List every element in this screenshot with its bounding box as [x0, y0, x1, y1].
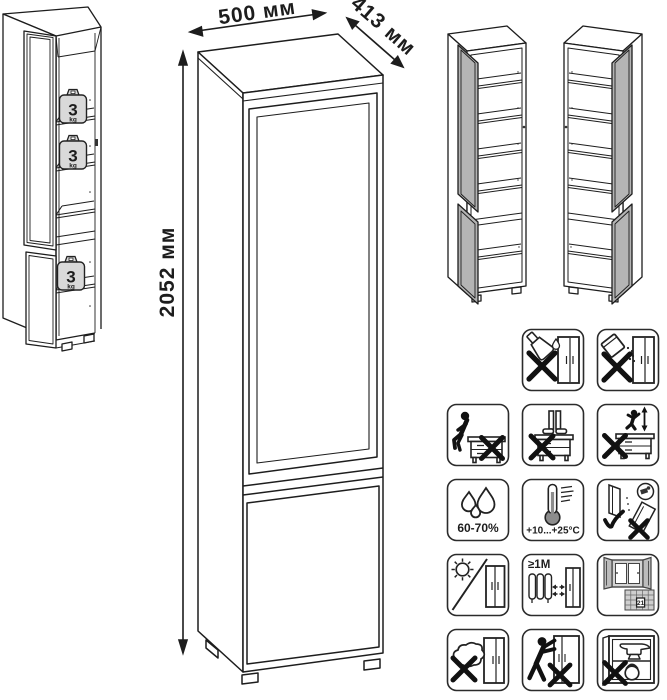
wardrobe-glyph: [566, 568, 580, 607]
main-cabinet-dimension-view: 500 мм 413 мм 2052 мм: [150, 0, 420, 700]
upper-door: [249, 93, 377, 474]
door-variant-left-view: [428, 12, 538, 312]
cabinet-foot: [242, 673, 258, 684]
no-liquids-icon: [521, 328, 585, 392]
kettlebell-glyph: [625, 665, 639, 680]
radiator-glyph: [529, 574, 552, 603]
shelf-load-weight: 3 kg: [58, 257, 85, 291]
open-cabinet-load-view: 3 kg 3 kg 3 kg: [0, 0, 115, 370]
weight-unit: kg: [69, 163, 77, 170]
furniture-spec-sheet: 3 kg 3 kg 3 kg: [0, 0, 667, 700]
no-wet-cleaning-icon: [446, 628, 510, 692]
cabinet-foot: [364, 659, 380, 670]
wardrobe-glyph: [484, 638, 504, 683]
no-dragging-icon: [521, 628, 585, 692]
open-door-lower: [26, 252, 56, 348]
temperature-range-label: +10...+25°C: [526, 526, 579, 537]
lower-door: [247, 486, 379, 664]
upright-panel-glyph: [609, 485, 620, 517]
weight-unit: kg: [69, 117, 77, 124]
heater-distance-icon: ≥1М: [521, 553, 585, 617]
no-direct-sunlight-icon: [446, 553, 510, 617]
wardrobe-glyph: [633, 337, 654, 383]
no-powder-icon: [596, 328, 660, 392]
humidity-range-label: 60-70%: [457, 521, 499, 535]
temperature-range-icon: +10...+25°C: [521, 478, 585, 542]
no-heavy-load-icon: [596, 628, 660, 692]
carry-upright-icon: [596, 478, 660, 542]
calendar-day-label: 21: [637, 600, 645, 607]
no-jumping-icon: [596, 403, 660, 467]
humidity-range-icon: 60-70%: [446, 478, 510, 542]
no-standing-icon: [521, 403, 585, 467]
no-sitting-icon: [446, 403, 510, 467]
shelf-load-weight: 3 kg: [60, 136, 87, 170]
sun-glyph: [452, 559, 474, 581]
shelf-pin-holes: [89, 99, 91, 307]
cabinet-carcass: [3, 7, 101, 351]
width-dimension-label: 500 мм: [217, 0, 297, 29]
weight-unit: kg: [67, 284, 75, 291]
min-distance-label: ≥1М: [528, 559, 550, 571]
wardrobe-glyph: [558, 337, 579, 383]
open-door-upper: [24, 31, 56, 250]
cabinet-body: [198, 34, 383, 684]
shelf-load-weight: 3 kg: [60, 90, 87, 124]
wardrobe-glyph: [486, 566, 505, 607]
door-handle: [95, 139, 98, 146]
door-variant-right-view: [552, 12, 662, 312]
calendar-glyph: 21: [625, 590, 654, 610]
ventilated-room-icon: 21: [596, 553, 660, 617]
open-window-glyph: [604, 558, 651, 590]
height-dimension-label: 2052 мм: [156, 227, 179, 318]
